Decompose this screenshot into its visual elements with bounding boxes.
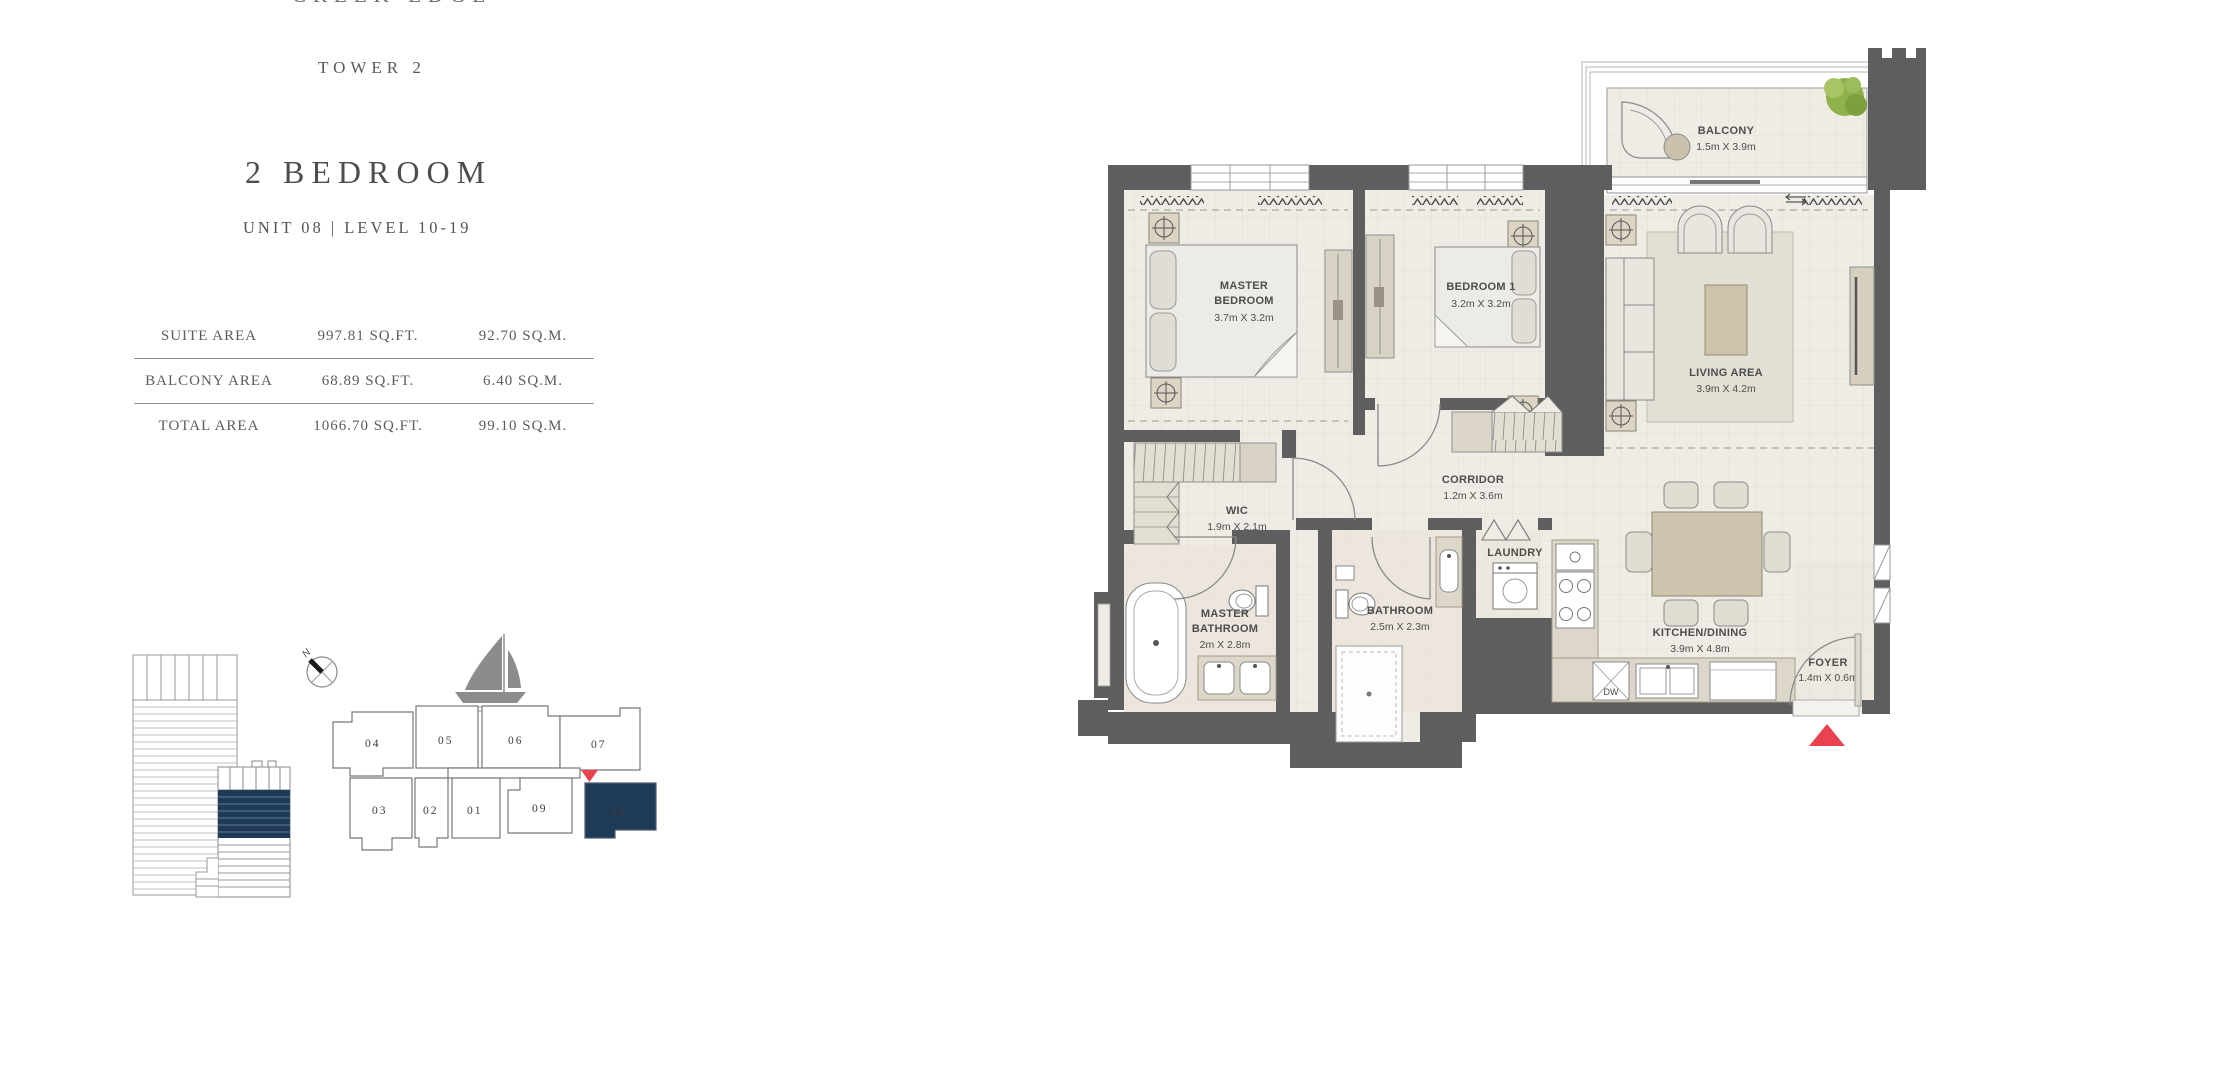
room-dims: 3.9m X 4.2m [1696, 383, 1756, 395]
location-marker-icon [581, 770, 598, 782]
area-sqft: 1066.70 SQ.FT. [284, 418, 452, 435]
unit-number: 05 [438, 735, 454, 747]
room-label: LIVING AREA [1689, 367, 1763, 379]
unit-number: 03 [372, 805, 388, 817]
room-label: BEDROOM 1 [1446, 281, 1515, 293]
room-dims: 3.2m X 3.2m [1451, 298, 1511, 310]
room-dims: 1.4m X 0.6m [1798, 672, 1858, 684]
unit-number: 01 [467, 805, 483, 817]
area-sqft: 68.89 SQ.FT. [284, 373, 452, 390]
area-sqm: 6.40 SQ.M. [452, 373, 594, 390]
unit-details: UNIT 08 | LEVEL 10-19 [243, 218, 472, 238]
area-sqm: 99.10 SQ.M. [452, 418, 594, 435]
room-dims: 1.5m X 3.9m [1696, 141, 1756, 153]
room-label: MASTER [1220, 280, 1268, 292]
room-balcony: BALCONY 1.5m X 3.9m [1582, 62, 1868, 193]
room-dims: 3.7m X 3.2m [1214, 312, 1274, 324]
area-label: SUITE AREA [134, 328, 284, 345]
tub-faucet [1153, 640, 1159, 646]
table-row: TOTAL AREA 1066.70 SQ.FT. 99.10 SQ.M. [134, 404, 594, 448]
room-label: KITCHEN/DINING [1653, 627, 1748, 639]
tower-name: TOWER 2 [318, 58, 426, 78]
room-bedroom-1: BEDROOM 1 3.2m X 3.2m [1366, 235, 1540, 358]
boat-icon [449, 634, 531, 711]
table-row: BALCONY AREA 68.89 SQ.FT. 6.40 SQ.M. [134, 359, 594, 404]
table-row: SUITE AREA 997.81 SQ.FT. 92.70 SQ.M. [134, 314, 594, 359]
room-label: BATHROOM [1192, 623, 1258, 635]
floor-plan: BALCONY 1.5m X 3.9m [1060, 30, 1940, 770]
area-sqft: 997.81 SQ.FT. [284, 328, 452, 345]
room-dims: 2.5m X 2.3m [1370, 621, 1430, 633]
room-dims: 1.9m X 2.1m [1207, 521, 1267, 533]
unit-number: 07 [591, 739, 607, 751]
unit-number: 04 [365, 738, 381, 750]
room-label: LAUNDRY [1487, 547, 1543, 559]
room-dims: 3.9m X 4.8m [1670, 643, 1730, 655]
area-label: BALCONY AREA [134, 373, 284, 390]
room-dims: 1.2m X 3.6m [1443, 490, 1503, 502]
keyplan-corridor [448, 768, 580, 778]
entrance-marker-icon [1809, 724, 1845, 746]
brochure-page: CREEK EDGE TOWER 2 2 BEDROOM UNIT 08 | L… [0, 0, 2220, 1080]
key-plan: N 04 05 06 07 03 02 01 09 0 [120, 630, 680, 910]
entrance-threshold [1793, 700, 1859, 716]
room-label: WIC [1226, 505, 1248, 517]
compass-icon: N [300, 647, 337, 687]
page-title: 2 BEDROOM [245, 154, 492, 191]
project-name: CREEK EDGE [292, 0, 492, 8]
dishwasher-label: DW [1604, 687, 1619, 697]
room-label: BALCONY [1698, 125, 1755, 137]
room-dims: 2m X 2.8m [1200, 639, 1251, 651]
area-sqm: 92.70 SQ.M. [452, 328, 594, 345]
room-label: BEDROOM [1214, 295, 1274, 307]
unit-number: 09 [532, 803, 548, 815]
north-label: N [300, 647, 313, 660]
area-table: SUITE AREA 997.81 SQ.FT. 92.70 SQ.M. BAL… [134, 314, 594, 448]
room-label: BATHROOM [1367, 605, 1433, 617]
room-label: FOYER [1808, 657, 1847, 669]
highlighted-unit-number: 08 [611, 806, 627, 818]
unit-number: 02 [423, 805, 439, 817]
room-label: MASTER [1201, 608, 1249, 620]
room-label: CORRIDOR [1442, 474, 1504, 486]
unit-key-plan [333, 706, 656, 850]
balcony-side-table [1664, 134, 1690, 160]
area-label: TOTAL AREA [134, 418, 284, 435]
unit-number: 06 [508, 735, 524, 747]
